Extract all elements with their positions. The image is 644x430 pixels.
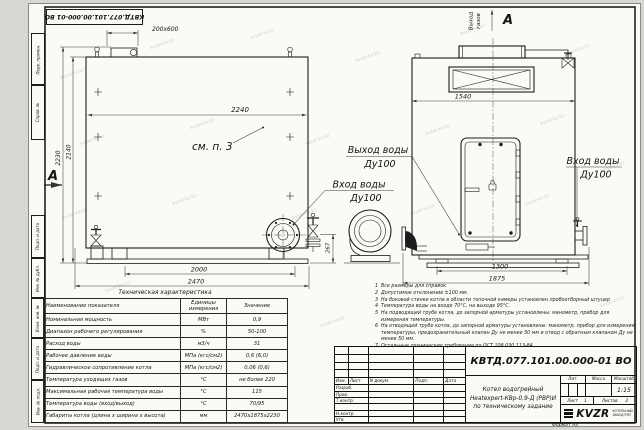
note-item: 3На боковой стенке котла в области топоч…	[368, 298, 635, 304]
dim-height-total: 2230	[55, 150, 62, 165]
water-outlet-elbow-icon	[402, 227, 427, 251]
product-title: Котел водогрейный Heatexpert-КВр-0,9-Д (…	[466, 376, 561, 422]
dim-front-overall: 1875	[489, 275, 506, 283]
drain-valve-icon	[91, 225, 101, 246]
water-inlet-dn: Ду100	[349, 193, 381, 204]
corner-stamp-text: КВТД.077.101.00.000-01 ВО	[45, 14, 145, 21]
spec-table-block: Техническая характеристика Наименование …	[43, 289, 287, 423]
gas-outlet-label: Выход	[469, 12, 475, 31]
section-label-a: А	[47, 169, 58, 184]
spec-row: Рабочее давление водыМПа (кгс/см2)0,6 (6…	[44, 350, 288, 362]
dim-supports: 2000	[191, 266, 208, 274]
meta-header-row: Лит. Масса Масштаб	[561, 376, 636, 384]
spec-table: Наименование показателя Единицы измерени…	[43, 298, 288, 423]
spec-header-row: Наименование показателя Единицы измерени…	[44, 299, 288, 314]
dim-height-body: 2140	[66, 144, 73, 159]
kvzr-logo-subtext: КОТЕЛЬНЫЙ ЗАВОД РЭП	[612, 410, 632, 418]
spec-row: Расход водым3/ч31	[44, 338, 288, 350]
sheet-row: Лист 1 Листов 2	[561, 397, 636, 405]
title-block-signatures: Изм. Лист N докум. Подп. Дата Разраб. Пр…	[335, 347, 466, 422]
revision-header-row: Изм. Лист N докум. Подп. Дата	[335, 378, 465, 385]
boiler-side-view	[86, 47, 320, 263]
notes-block: 1Все размеры для справок 2Допустимое отк…	[368, 284, 635, 351]
spec-row: Температура уходящих газов°Сне более 220	[44, 374, 288, 386]
corner-stamp: КВТД.077.101.00.000-01 ВО	[46, 9, 143, 25]
spec-row: Максимальная рабочая температура воды°С1…	[44, 386, 288, 398]
frame-cell-perv-primen: Перв. примен.	[31, 33, 45, 85]
frame-cell-sprav: Справ. №	[31, 85, 45, 140]
view-label-a: А	[502, 13, 513, 28]
air-valve-icon	[562, 53, 574, 68]
frame-cell-podp-data1: Подп. и дата	[31, 215, 45, 258]
dim-front-base: 1300	[492, 263, 509, 271]
meta-value-row: 1:15	[561, 384, 636, 397]
spec-row: Температура воды (вход/выход)°С70/95	[44, 398, 288, 410]
format-label: Формат А3	[552, 423, 578, 428]
dim-width-top: 2240	[231, 106, 249, 114]
dim-nozzle-height: 267	[326, 242, 332, 253]
spec-row: Гидравлическое сопротивление котлаМПа (к…	[44, 362, 288, 374]
door-lock-icon	[489, 181, 496, 190]
dim-front-width: 1540	[455, 93, 472, 101]
scale-value: 1:15	[612, 384, 636, 396]
dim-length-overall: 2470	[188, 278, 205, 286]
door-handle-icon	[465, 188, 479, 192]
kvzr-logo-text: KVZR	[576, 408, 609, 420]
title-block: Изм. Лист N докум. Подп. Дата Разраб. Пр…	[334, 346, 637, 423]
chimney-stub	[459, 46, 525, 58]
side-view-dimensions: 200х600 2240 2230 2140 2000 2470 267 см.…	[44, 26, 336, 289]
furnace-door	[461, 138, 520, 241]
boiler-drawing-sheet: kvzar-kv.kz kvzar-kv.kz kvzar-kv.kz kvza…	[0, 0, 644, 430]
gas-outlet-label2: газов	[476, 13, 482, 29]
water-outlet-dn: Ду100	[363, 159, 395, 170]
company-logo: KVZR КОТЕЛЬНЫЙ ЗАВОД РЭП	[561, 405, 636, 422]
note-item: 4Температура воды на входе 70°С, на выхо…	[368, 304, 635, 310]
louver-grille	[449, 67, 534, 92]
spec-table-title: Техническая характеристика	[43, 289, 287, 296]
kvzr-logo-icon	[564, 409, 573, 419]
water-outlet-label: Выход воды	[348, 145, 409, 156]
ash-drawer-handle	[466, 244, 488, 250]
boiler-front-view	[412, 38, 588, 268]
spec-row: Диапазон рабочего регулирования%50-100	[44, 326, 288, 338]
note-item: 5На подводящей трубе котла, до запорной …	[368, 311, 635, 323]
spec-row: Номинальная мощностьМВт0,9	[44, 314, 288, 326]
note-item: 1Все размеры для справок	[368, 284, 635, 290]
front-view-dimensions: 1540 1300 1875 Выход газов А Вход воды Д…	[403, 10, 622, 286]
water-inlet-right-label: Вход воды	[566, 156, 620, 167]
water-inlet-label: Вход воды	[332, 180, 386, 191]
note-item: 6На отводящей трубе котла, до запорной а…	[368, 324, 635, 343]
see-note-label: см. п. 3	[192, 141, 233, 153]
eye-bolt-icon	[95, 47, 293, 57]
note-item: 2Допустимое отклонение ±100 мм.	[368, 291, 635, 297]
signature-row: Утв.	[335, 417, 465, 423]
flue-fan-icon	[344, 210, 400, 263]
document-number: КВТД.077.101.00.000-01 ВО	[466, 347, 636, 376]
water-inlet-right-dn: Ду100	[579, 170, 611, 181]
spec-row: Габариты котла (длина х ширина х высота)…	[44, 410, 288, 422]
dim-opening: 200х600	[152, 26, 179, 33]
